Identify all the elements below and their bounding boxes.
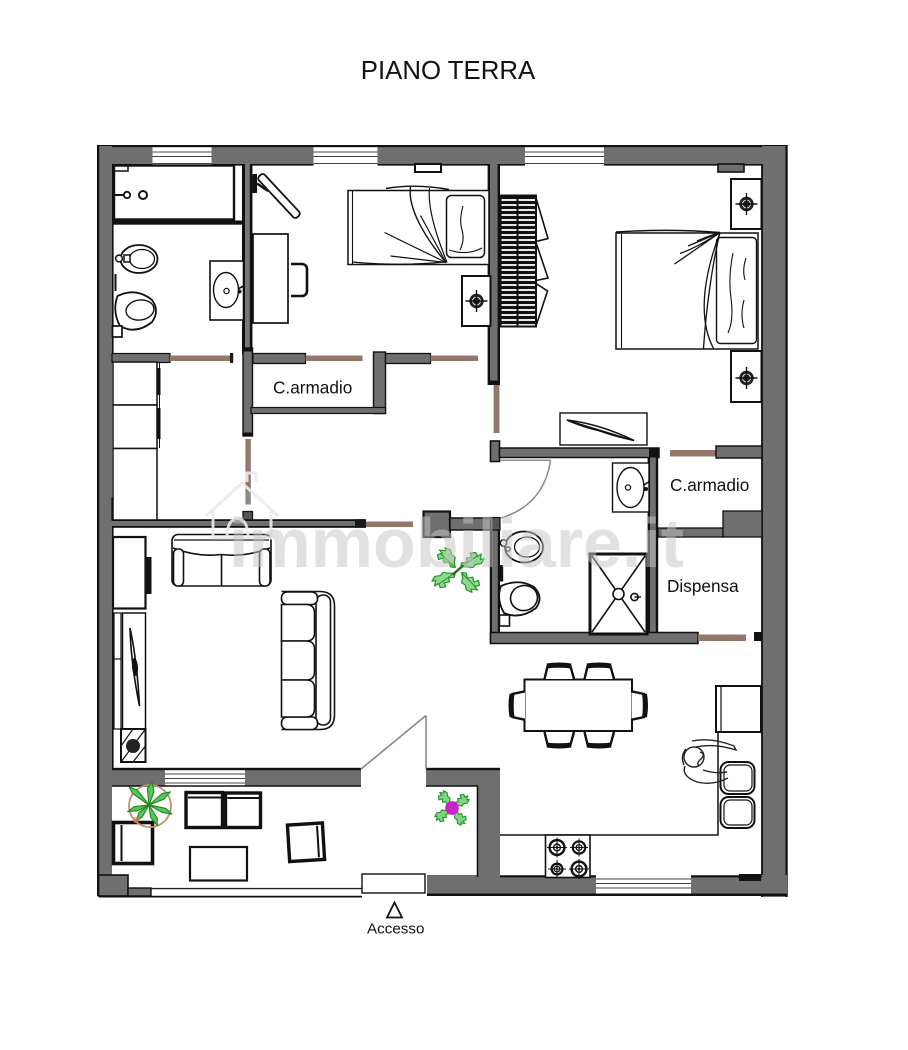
svg-text:C.armadio: C.armadio — [273, 378, 352, 398]
svg-text:Dispensa: Dispensa — [667, 576, 739, 596]
svg-text:immobiliare.it: immobiliare.it — [229, 504, 684, 582]
svg-text:PIANO TERRA: PIANO TERRA — [361, 57, 536, 85]
svg-text:Accesso: Accesso — [367, 921, 424, 938]
svg-text:C.armadio: C.armadio — [670, 475, 749, 495]
